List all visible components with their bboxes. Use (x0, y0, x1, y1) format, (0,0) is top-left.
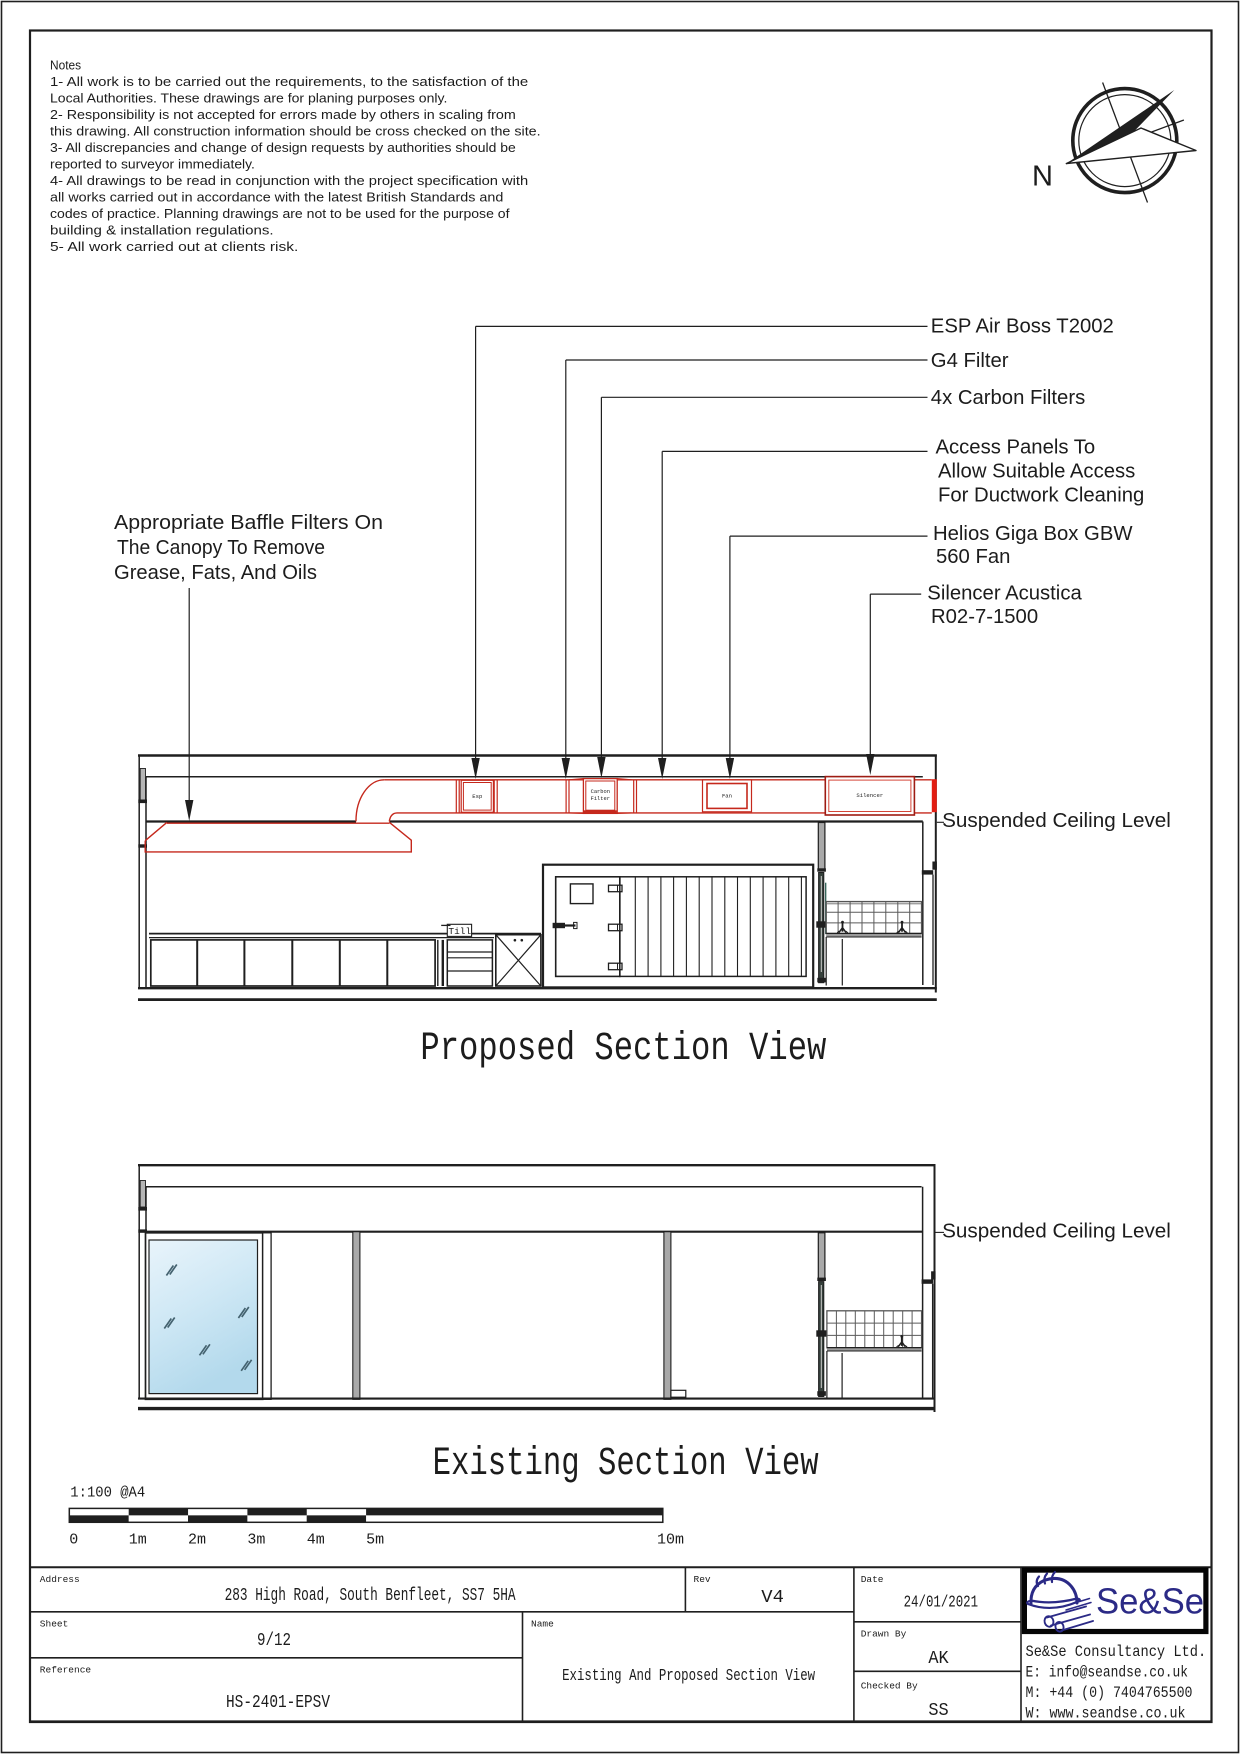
svg-text:Date: Date (861, 1574, 884, 1585)
svg-text:Existing Section View: Existing Section View (433, 1442, 819, 1487)
svg-text:5m: 5m (366, 1532, 384, 1549)
svg-text:R02-7-1500: R02-7-1500 (931, 606, 1038, 628)
svg-text:4x Carbon Filters: 4x Carbon Filters (931, 387, 1085, 409)
svg-text:4- All drawings to be read in: 4- All drawings to be read in conjunctio… (50, 173, 528, 188)
svg-text:283 High Road, South Benfleet,: 283 High Road, South Benfleet, SS7 5HA (225, 1586, 516, 1606)
svg-text:Drawn By: Drawn By (861, 1629, 907, 1640)
svg-text:AK: AK (928, 1649, 948, 1669)
svg-text:Rev: Rev (694, 1574, 711, 1585)
svg-text:Proposed Section View: Proposed Section View (420, 1027, 826, 1072)
svg-text:Allow Suitable Access: Allow Suitable Access (938, 460, 1135, 482)
svg-text:3- All discrepancies and chang: 3- All discrepancies and change of desig… (50, 140, 516, 155)
svg-text:Se&Se: Se&Se (1096, 1581, 1204, 1622)
svg-text:this drawing. All construction: this drawing. All construction informati… (50, 123, 541, 138)
svg-text:W: www.seandse.co.uk: W: www.seandse.co.uk (1026, 1705, 1186, 1723)
svg-text:Carbon: Carbon (591, 789, 610, 795)
svg-text:N: N (1032, 161, 1053, 193)
svg-text:Address: Address (40, 1574, 80, 1585)
svg-text:Filter: Filter (591, 796, 610, 802)
svg-text:Appropriate Baffle Filters On: Appropriate Baffle Filters On (114, 512, 383, 534)
svg-text:1m: 1m (129, 1532, 147, 1549)
svg-text:Grease, Fats, And Oils: Grease, Fats, And Oils (114, 562, 317, 584)
svg-text:Suspended Ceiling Level: Suspended Ceiling Level (942, 809, 1171, 832)
svg-text:1:100 @A4: 1:100 @A4 (70, 1484, 145, 1501)
svg-text:0: 0 (69, 1532, 78, 1549)
svg-text:Suspended Ceiling Level: Suspended Ceiling Level (942, 1219, 1171, 1242)
svg-text:Sheet: Sheet (40, 1619, 69, 1630)
svg-text:10m: 10m (657, 1532, 684, 1549)
svg-text:Helios Giga Box GBW: Helios Giga Box GBW (933, 523, 1133, 545)
svg-text:5- All work carried out at cli: 5- All work carried out at clients risk. (50, 239, 298, 254)
svg-text:For Ductwork Cleaning: For Ductwork Cleaning (938, 485, 1144, 507)
svg-text:V4: V4 (761, 1588, 784, 1608)
svg-text:M: +44 (0) 7404765500: M: +44 (0) 7404765500 (1026, 1684, 1193, 1702)
svg-text:Silencer: Silencer (856, 792, 883, 799)
svg-text:3m: 3m (247, 1532, 265, 1549)
svg-text:Reference: Reference (40, 1665, 92, 1676)
svg-text:E: info@seandse.co.uk: E: info@seandse.co.uk (1026, 1664, 1189, 1682)
svg-text:building & installation regula: building & installation regulations. (50, 223, 274, 238)
svg-text:Existing And Proposed Section: Existing And Proposed Section View (562, 1667, 816, 1686)
svg-text:1- All work is to be carried o: 1- All work is to be carried out the req… (50, 74, 528, 89)
svg-text:all works carried out in accor: all works carried out in accordance with… (50, 190, 503, 205)
svg-text:Notes: Notes (50, 57, 81, 72)
svg-text:G4 Filter: G4 Filter (931, 350, 1009, 372)
svg-text:Access Panels To: Access Panels To (936, 436, 1096, 458)
svg-text:The Canopy To Remove: The Canopy To Remove (117, 537, 325, 559)
svg-text:24/01/2021: 24/01/2021 (904, 1594, 979, 1613)
svg-text:Fan: Fan (722, 792, 732, 799)
svg-text:Till: Till (448, 926, 471, 937)
svg-text:SS: SS (928, 1701, 948, 1721)
svg-text:Esp: Esp (472, 793, 482, 800)
svg-text:Local Authorities. These drawi: Local Authorities. These drawings are fo… (50, 90, 447, 105)
svg-text:2m: 2m (188, 1532, 206, 1549)
svg-text:2- Responsibility is not accep: 2- Responsibility is not accepted for er… (50, 107, 516, 122)
svg-text:Silencer Acustica: Silencer Acustica (927, 582, 1082, 604)
svg-text:Se&Se Consultancy Ltd.: Se&Se Consultancy Ltd. (1026, 1643, 1207, 1661)
svg-text:Name: Name (531, 1619, 554, 1630)
svg-text:4m: 4m (307, 1532, 325, 1549)
svg-text:reported to surveyor immediate: reported to surveyor immediately. (50, 157, 255, 172)
svg-text:ESP Air Boss T2002: ESP Air Boss T2002 (931, 316, 1114, 338)
svg-text:HS-2401-EPSV: HS-2401-EPSV (226, 1693, 330, 1713)
svg-text:codes of practice. Planning dr: codes of practice. Planning drawings are… (50, 206, 510, 221)
svg-text:9/12: 9/12 (257, 1631, 291, 1651)
svg-text:Checked By: Checked By (861, 1681, 918, 1692)
svg-text:560 Fan: 560 Fan (936, 546, 1010, 568)
